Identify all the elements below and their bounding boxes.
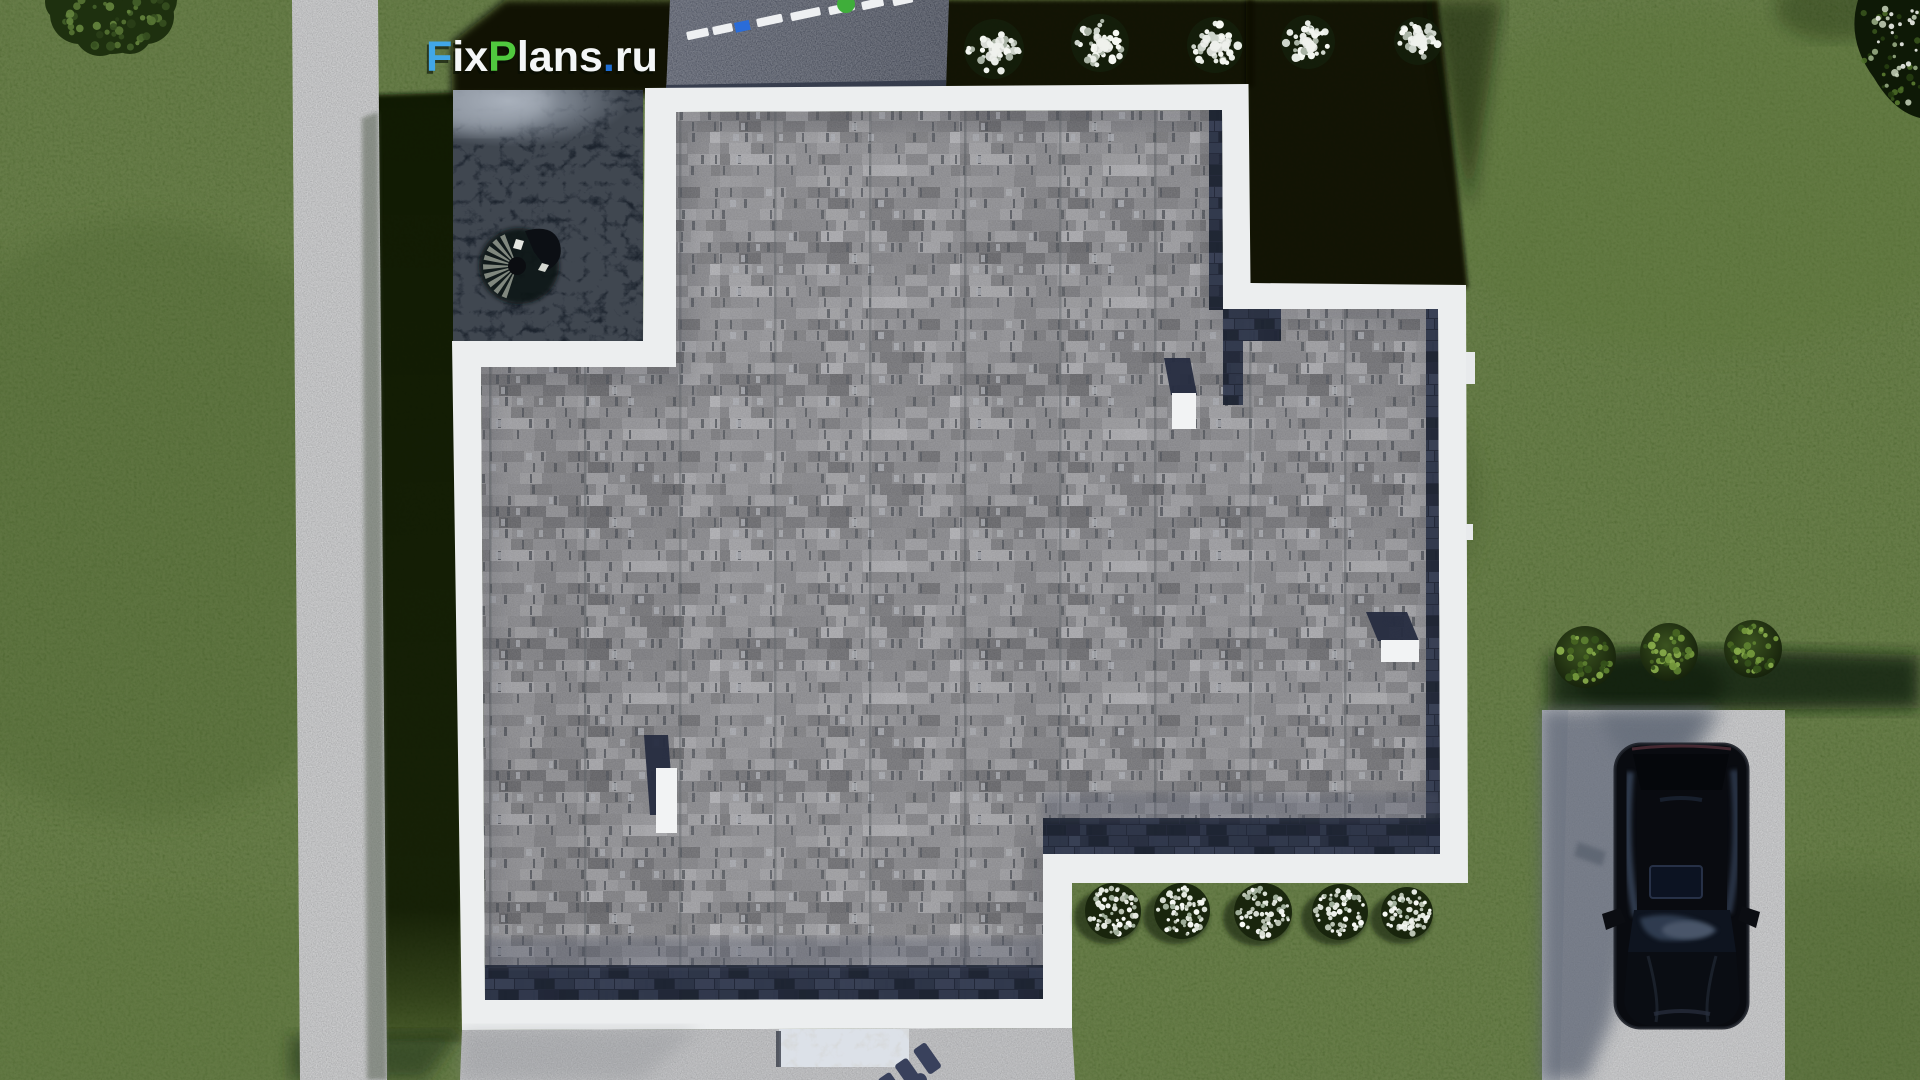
svg-text:FixPlans.ru: FixPlans.ru bbox=[426, 33, 658, 81]
